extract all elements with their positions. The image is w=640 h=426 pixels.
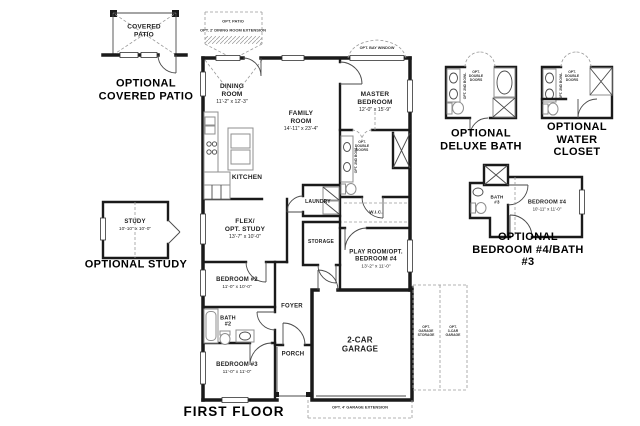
optional-deluxe-bath-diagram bbox=[446, 52, 516, 136]
floor-plan: COVERED PATIO OPTIONAL COVERED PATIO OPT… bbox=[0, 0, 640, 426]
optional-bedroom4-bath3-diagram bbox=[470, 165, 585, 237]
laundry-appliances bbox=[323, 187, 339, 214]
master-bath-fixtures bbox=[341, 133, 410, 222]
opt-patio-extension bbox=[205, 12, 262, 95]
floor-plan-drawing bbox=[0, 0, 640, 426]
optional-covered-patio-diagram bbox=[103, 10, 186, 73]
optional-water-closet-diagram bbox=[542, 52, 612, 118]
interior-walls bbox=[203, 58, 410, 400]
bath2-fixtures bbox=[204, 309, 254, 345]
garage-details bbox=[308, 285, 467, 418]
kitchen-fixtures bbox=[204, 112, 253, 199]
optional-study-diagram bbox=[101, 202, 181, 258]
porch-outline bbox=[274, 347, 311, 397]
